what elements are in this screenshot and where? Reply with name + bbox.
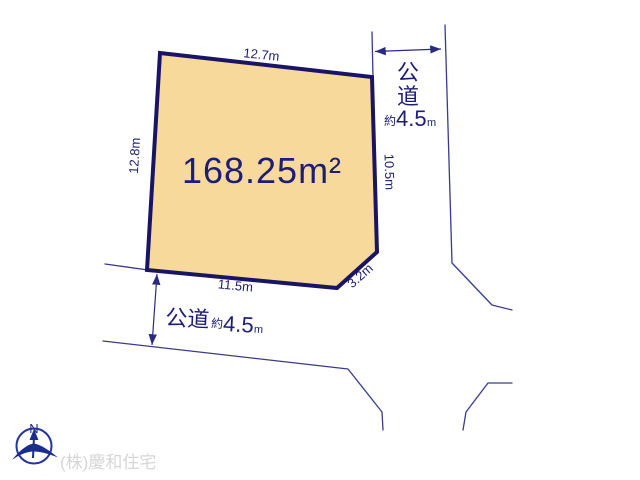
land-plot-diagram: 168.25m² 12.7m 12.8m 10.5m 11.5m 3.2m 公 … [0,0,640,480]
road-right-approx: 約 [384,113,396,128]
road-right-width-arrow [375,49,441,52]
road-bottom-approx: 約 [211,315,224,331]
road-right-width-value: 4.5 [396,106,427,131]
dim-right-label: 10.5m [381,154,397,191]
road-bottom-label: 公道 約 4.5 m [165,305,265,338]
road-right-width-unit: m [427,117,436,129]
diagram-svg: 168.25m² 12.7m 12.8m 10.5m 11.5m 3.2m 公 … [0,0,640,480]
plot-area-label: 168.25m² [182,150,342,191]
road-right-left-edge [372,32,373,77]
road-bottom-width-value: 4.5 [223,311,255,338]
road-right-label: 公 道 約 4.5 m [384,60,436,131]
company-name: (株)慶和住宅 [60,453,156,472]
compass-icon: N [12,421,58,464]
road-bottom-width-arrow [152,274,157,345]
dim-left-label: 12.8m [126,137,143,174]
road-bottom-width-unit: m [254,324,264,336]
road-right-name-top: 公 [397,60,419,85]
road-bottom-upper-edge [105,264,148,270]
dim-bottom-label: 11.5m [217,276,253,294]
road-bottom-name: 公道 [165,305,210,332]
road-right-right-edge [445,25,512,310]
road-south-right-edge [463,383,512,430]
road-bottom-lower-edge [103,341,383,430]
